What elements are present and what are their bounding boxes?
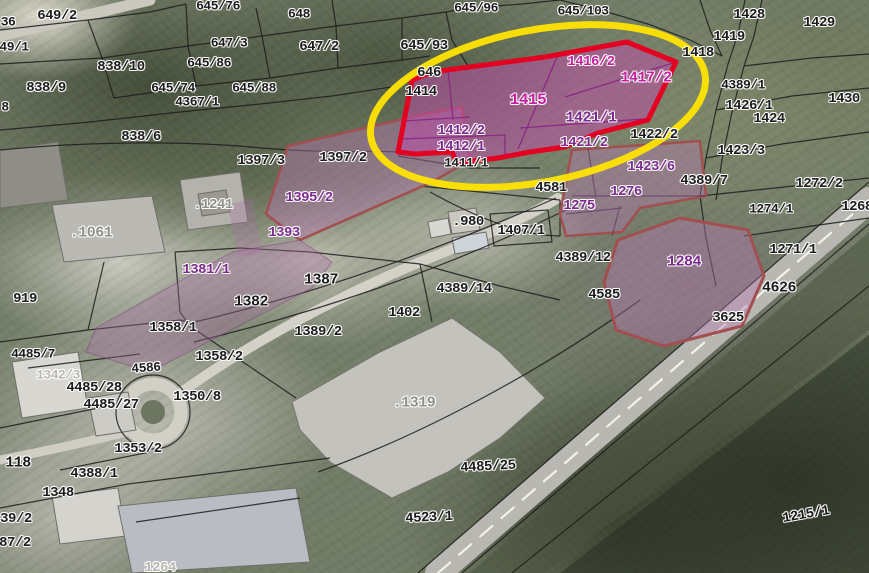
parcel-label: 1382 <box>234 294 268 311</box>
parcel-label: 1415 <box>510 91 546 109</box>
parcel-label: 4485/27 <box>83 397 138 413</box>
parcel-label: 1417/2 <box>620 70 671 87</box>
parcel-label: 1215/1 <box>781 503 830 527</box>
parcel-label: 646 <box>417 65 441 81</box>
parcel-label: 4388/1 <box>70 466 117 482</box>
parcel-label: 838/9 <box>26 80 66 96</box>
parcel-label: 645/74 <box>151 81 195 96</box>
parcel-label: 1353/2 <box>114 441 161 457</box>
parcel-label: 645/76 <box>196 0 240 14</box>
parcel-label: 1418 <box>682 45 714 61</box>
parcel-label: 1397/2 <box>319 150 366 166</box>
parcel-label: 1423/6 <box>627 159 674 175</box>
parcel-label: 1412/2 <box>437 123 484 139</box>
parcel-label: .980 <box>452 214 484 230</box>
parcel-label: 3625 <box>712 310 744 326</box>
parcel-label: 838/6 <box>121 129 161 145</box>
parcel-label: 4367/1 <box>175 95 219 110</box>
parcel-label: 1407/1 <box>497 223 544 239</box>
parcel-label: 645/88 <box>232 81 276 96</box>
parcel-label: 1430 <box>828 91 860 107</box>
parcel-label: 1342/3 <box>36 368 80 383</box>
parcel-label: 118 <box>5 455 31 472</box>
parcel-label: .1061 <box>70 225 113 242</box>
parcel-labels: 649/23649/18838/10838/9645/76647/3645/86… <box>0 0 869 573</box>
parcel-label: 4389/14 <box>436 281 491 297</box>
parcel-label: 387/2 <box>0 535 31 551</box>
parcel-label: 1393 <box>268 225 300 241</box>
parcel-label: 1422/2 <box>630 127 677 143</box>
parcel-label: 1381/1 <box>182 262 229 278</box>
parcel-label: 4586 <box>131 359 161 376</box>
parcel-label: 1284 <box>667 254 701 271</box>
parcel-label: 647/3 <box>211 36 248 51</box>
parcel-label: 1358/2 <box>195 349 242 365</box>
parcel-label: 645/96 <box>454 1 498 16</box>
parcel-label: 4626 <box>762 280 796 297</box>
parcel-label: 645/86 <box>187 56 231 71</box>
parcel-label: 8 <box>1 100 8 115</box>
parcel-label: 1274/1 <box>749 202 793 217</box>
parcel-label: 1264 <box>144 560 176 573</box>
parcel-label: 645/103 <box>557 4 608 19</box>
parcel-label: 919 <box>13 291 37 307</box>
parcel-label: 1397/3 <box>237 153 284 169</box>
parcel-label: 1389/2 <box>294 324 341 340</box>
parcel-label: 1276 <box>610 184 642 200</box>
parcel-label: 4523/1 <box>405 509 453 527</box>
parcel-label: 1387 <box>304 272 338 289</box>
parcel-label: 1395/2 <box>285 190 332 206</box>
parcel-label: 1416/2 <box>567 54 614 70</box>
parcel-label: 1271/1 <box>769 242 816 258</box>
parcel-label: 645/93 <box>400 38 447 54</box>
parcel-label: 1272/2 <box>795 176 842 192</box>
parcel-label: 4389/12 <box>555 250 610 266</box>
parcel-label: 1412/1 <box>437 139 484 155</box>
parcel-label: 4389/7 <box>680 173 727 189</box>
cadastral-map[interactable]: 649/23649/18838/10838/9645/76647/3645/86… <box>0 0 869 573</box>
parcel-label: 4389/1 <box>721 78 765 93</box>
parcel-label: 1350/8 <box>173 389 220 405</box>
parcel-label: 1358/1 <box>149 320 196 336</box>
parcel-label: 838/10 <box>97 59 144 75</box>
parcel-label: 49/1 <box>0 40 29 55</box>
parcel-label: 439/2 <box>0 511 32 527</box>
parcel-label: 648 <box>288 7 310 22</box>
parcel-label: 1421/2 <box>560 135 607 151</box>
parcel-label: 4485/7 <box>11 347 55 362</box>
parcel-label: 1402 <box>388 305 420 321</box>
parcel-label: 1424 <box>753 111 785 127</box>
parcel-label: 4581 <box>535 180 567 196</box>
parcel-label: 36 <box>1 15 16 30</box>
parcel-label: .1319 <box>393 395 436 412</box>
parcel-label: 1423/3 <box>717 143 764 159</box>
parcel-label: 1348 <box>42 485 74 501</box>
parcel-label: 4485/25 <box>460 458 516 477</box>
parcel-label: 649/2 <box>37 8 77 24</box>
parcel-label: 1428 <box>733 7 765 23</box>
parcel-label: 1414 <box>405 84 437 100</box>
parcel-label: 1421/1 <box>565 110 616 127</box>
parcel-label: 4585 <box>588 287 620 303</box>
parcel-label: 1429 <box>803 15 835 31</box>
parcel-label: 1419 <box>713 29 745 45</box>
parcel-label: 1275 <box>563 198 595 214</box>
parcel-label: 647/2 <box>299 39 339 55</box>
parcel-label: 1411/1 <box>444 156 488 171</box>
parcel-label: .1241 <box>193 197 233 213</box>
parcel-label: 1268 <box>841 199 869 215</box>
